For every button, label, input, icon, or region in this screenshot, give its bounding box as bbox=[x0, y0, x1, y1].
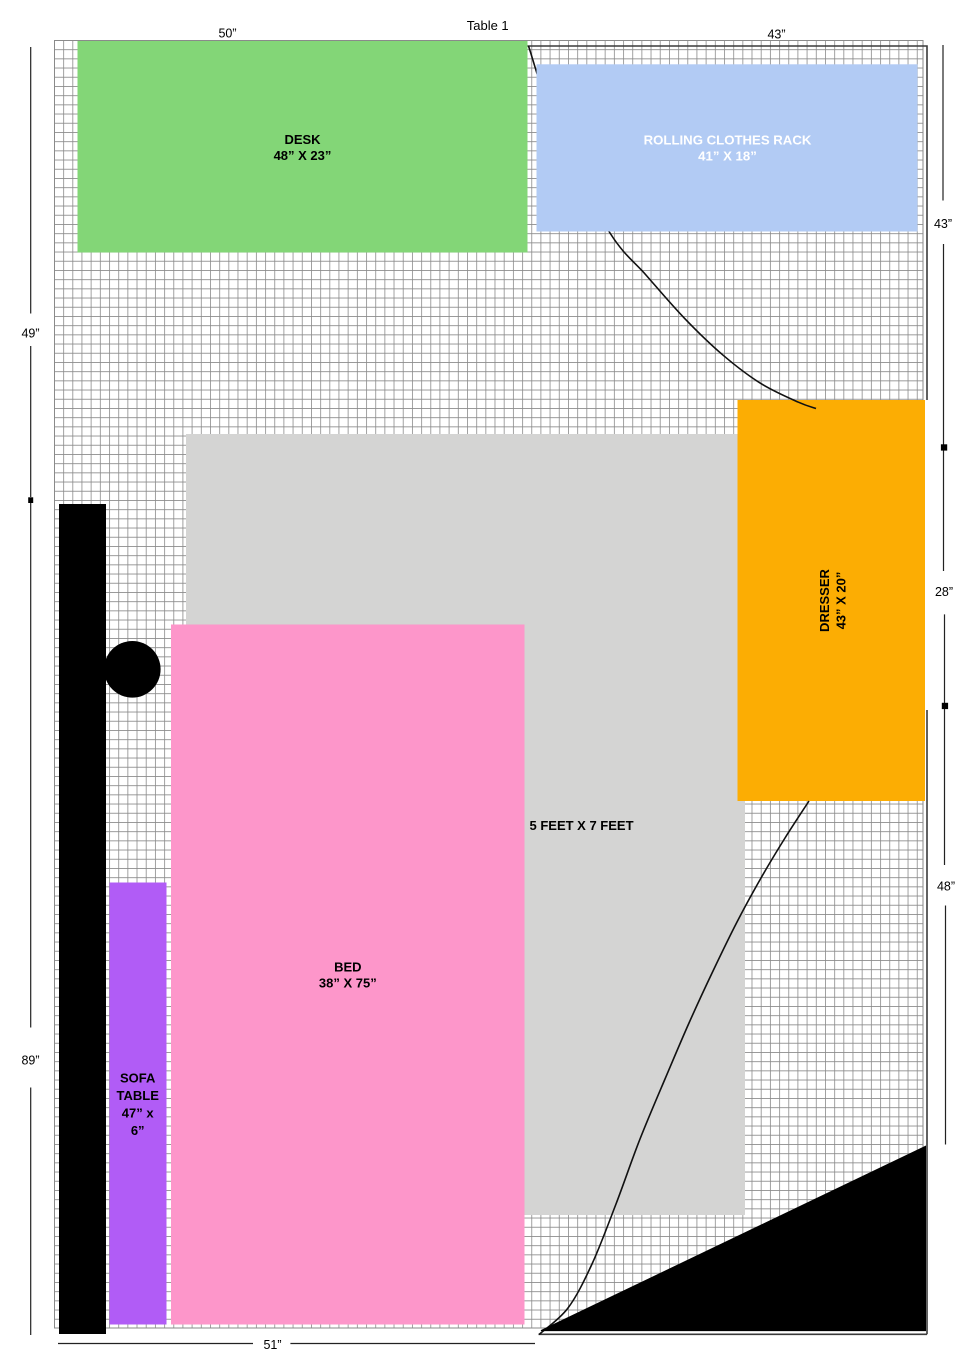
svg-text:43” X 20”: 43” X 20” bbox=[834, 572, 849, 630]
svg-text:43”: 43” bbox=[934, 217, 952, 231]
svg-text:28”: 28” bbox=[935, 585, 953, 599]
svg-text:ROLLING CLOTHES RACK: ROLLING CLOTHES RACK bbox=[644, 132, 812, 147]
svg-text:Table 1: Table 1 bbox=[467, 18, 509, 33]
svg-text:50”: 50” bbox=[218, 27, 236, 41]
svg-text:41” X 18”: 41” X 18” bbox=[698, 148, 757, 163]
svg-text:48” X 23”: 48” X 23” bbox=[274, 148, 332, 163]
svg-text:BED: BED bbox=[334, 959, 361, 974]
svg-text:5 FEET X 7 FEET: 5 FEET X 7 FEET bbox=[530, 818, 634, 833]
svg-text:DESK: DESK bbox=[284, 132, 321, 147]
svg-text:43”: 43” bbox=[767, 27, 785, 41]
svg-text:DRESSER: DRESSER bbox=[817, 568, 832, 631]
svg-text:51”: 51” bbox=[263, 1338, 281, 1352]
svg-text:48”: 48” bbox=[937, 880, 955, 894]
svg-text:6”: 6” bbox=[131, 1123, 145, 1138]
svg-text:SOFA: SOFA bbox=[120, 1071, 156, 1086]
svg-text:38” X 75”: 38” X 75” bbox=[319, 975, 377, 990]
svg-text:47” x: 47” x bbox=[122, 1105, 155, 1120]
svg-text:49”: 49” bbox=[21, 327, 39, 341]
svg-text:89”: 89” bbox=[21, 1054, 39, 1068]
svg-text:TABLE: TABLE bbox=[117, 1088, 160, 1103]
